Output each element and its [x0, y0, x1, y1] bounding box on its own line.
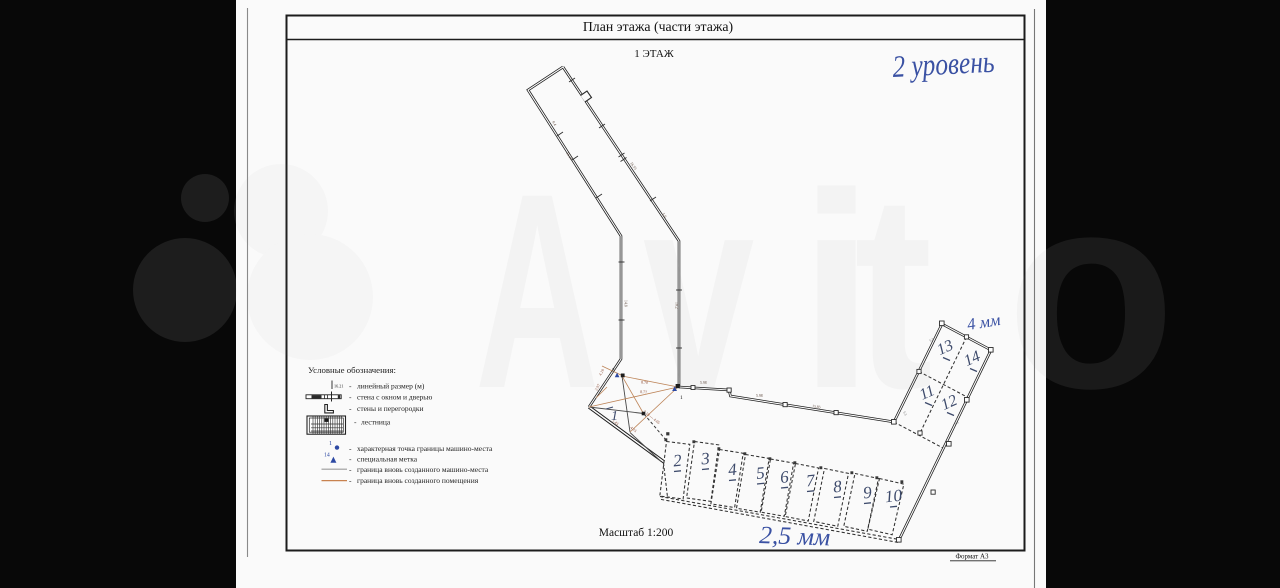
- svg-text:t: t: [854, 135, 933, 446]
- svg-text:A: A: [475, 137, 599, 447]
- svg-text:2,5 мм: 2,5 мм: [759, 522, 831, 551]
- svg-text:лестница: лестница: [361, 418, 391, 427]
- svg-text:1: 1: [611, 409, 618, 424]
- svg-text:специальная метка: специальная метка: [357, 454, 418, 463]
- svg-text:2 уровень: 2 уровень: [892, 44, 996, 84]
- svg-text:План этажа (части этажа): План этажа (части этажа): [583, 19, 733, 35]
- svg-text:10: 10: [884, 486, 903, 507]
- svg-text:1 ЭТАЖ: 1 ЭТАЖ: [634, 48, 674, 60]
- svg-text:линейный размер (м): линейный размер (м): [357, 381, 425, 390]
- svg-text:стена с окном и дверью: стена с окном и дверью: [357, 392, 433, 401]
- svg-text:стены и перегородки: стены и перегородки: [357, 404, 424, 413]
- svg-text:14.8: 14.8: [624, 300, 628, 307]
- svg-text:5.98: 5.98: [756, 394, 763, 398]
- svg-text:граница вновь созданного помещ: граница вновь созданного помещения: [357, 476, 479, 485]
- svg-text:16.21: 16.21: [334, 384, 343, 389]
- svg-text:1: 1: [329, 440, 332, 447]
- svg-text:v: v: [643, 137, 754, 447]
- svg-text:Масштаб 1:200: Масштаб 1:200: [599, 527, 674, 539]
- svg-text:Формат А3: Формат А3: [955, 553, 989, 561]
- svg-text:Условные обозначения:: Условные обозначения:: [308, 365, 396, 375]
- svg-text:характерная точка границы маши: характерная точка границы машино-места: [357, 444, 493, 453]
- svg-text:3: 3: [699, 449, 710, 469]
- svg-text:граница вновь созданного машин: граница вновь созданного машино-места: [357, 465, 489, 474]
- svg-text:14: 14: [324, 453, 330, 459]
